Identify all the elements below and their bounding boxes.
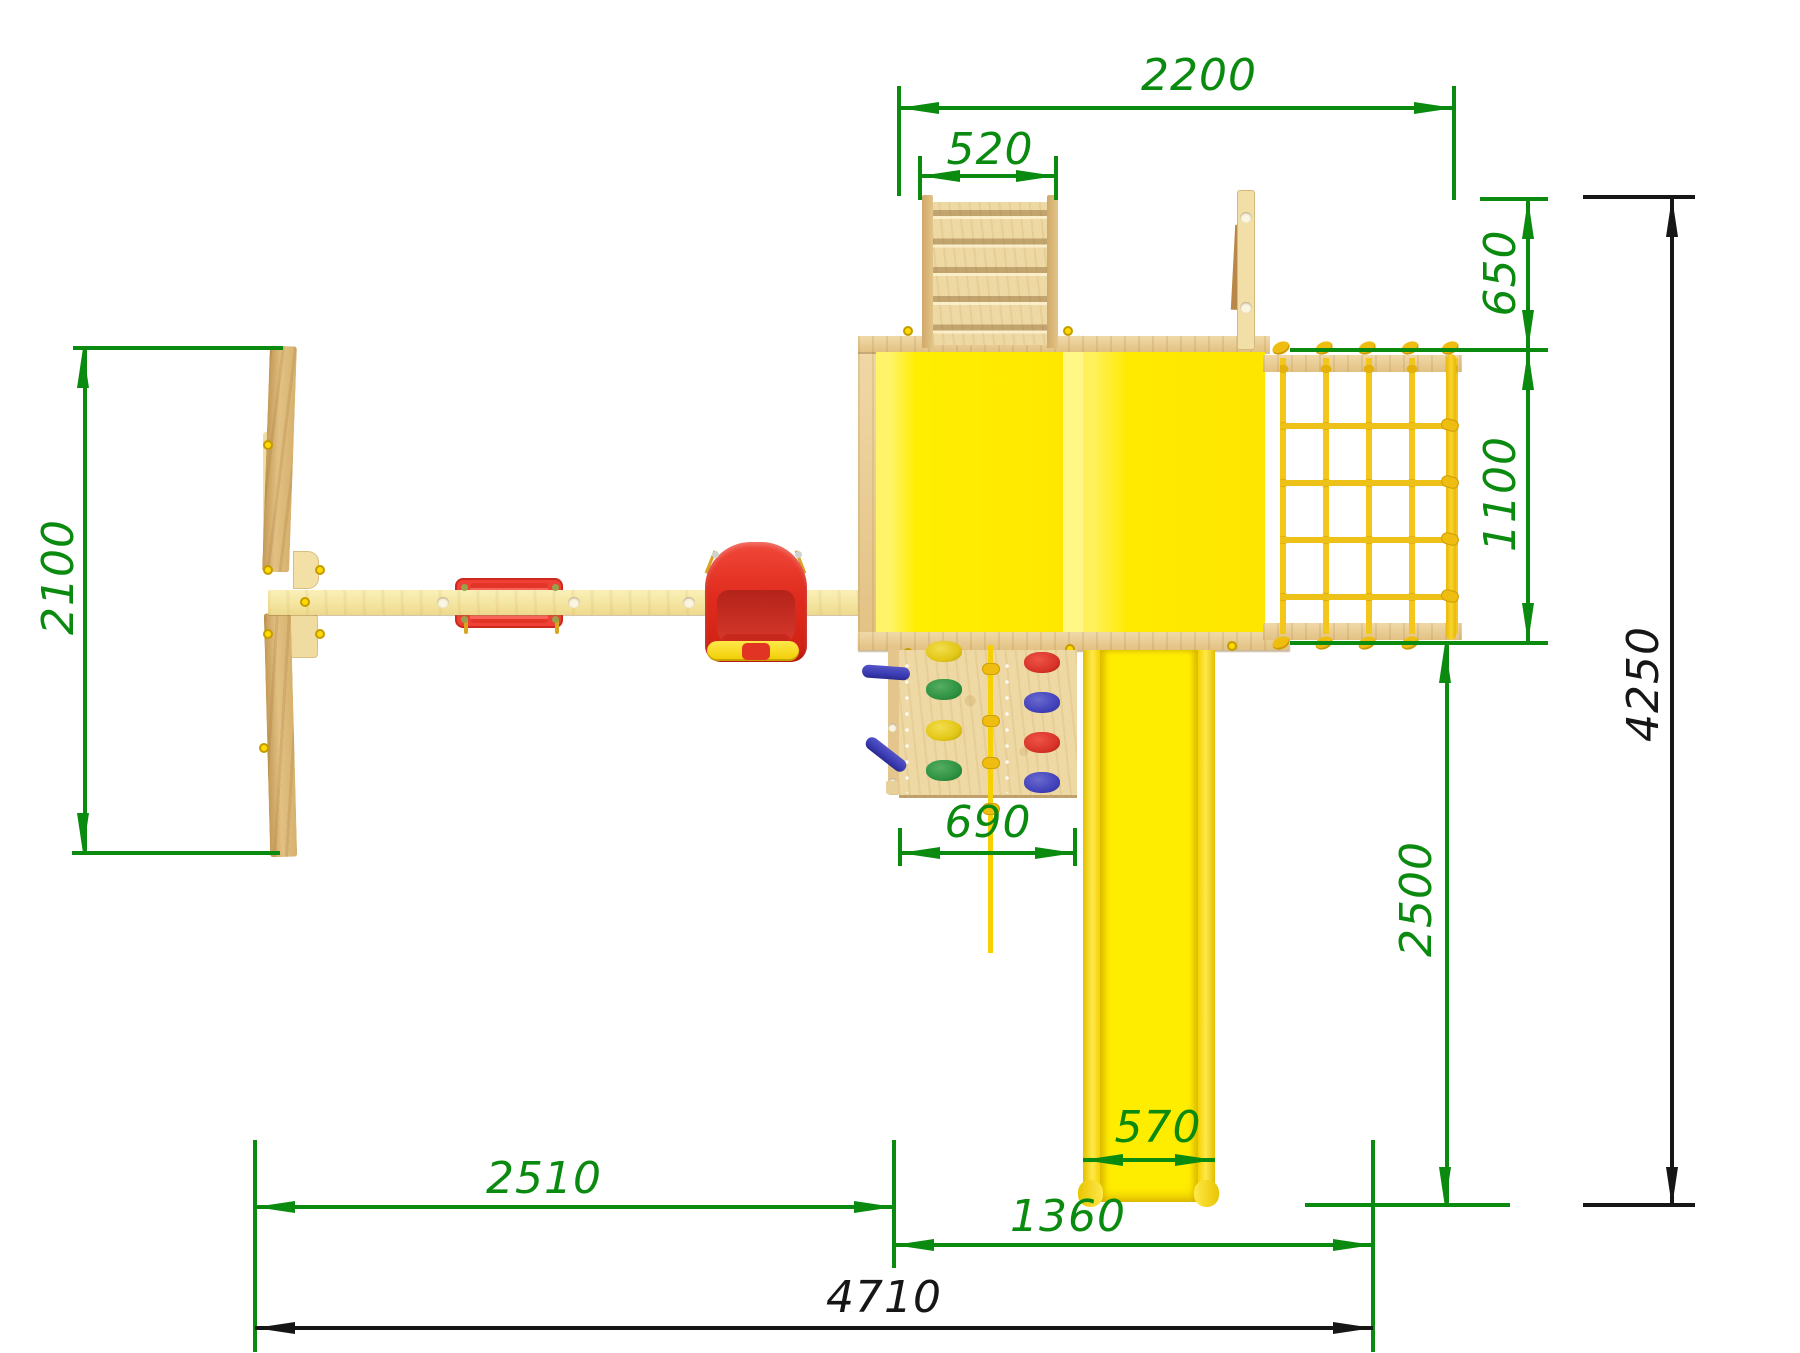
aframe-bolt — [263, 629, 273, 639]
ladder-rungs — [933, 202, 1047, 345]
flag-slat-hole — [1240, 302, 1252, 313]
dim-line-2500 — [1445, 643, 1449, 1207]
playground-plan-canvas: 2200 520 650 1100 4250 2500 2100 690 570 — [0, 0, 1800, 1353]
rim-bolt — [903, 326, 913, 336]
aframe-bolt — [263, 565, 273, 575]
beam-bolt — [300, 597, 310, 607]
ext-line — [73, 346, 283, 350]
climb-hold-green — [926, 679, 962, 700]
dim-label-690: 690 — [888, 799, 1088, 845]
flat-seat-bolt — [552, 616, 559, 623]
climb-hold-green — [926, 760, 962, 781]
climb-hold-yellow — [926, 641, 962, 662]
dim-label-650: 650 — [1477, 173, 1523, 373]
net-h-rope — [1280, 594, 1455, 600]
ladder-left-rail — [922, 195, 933, 348]
grab-handle-blue — [862, 664, 911, 680]
ladder-right-rail — [1047, 195, 1058, 348]
climbwall-rail-hole — [888, 723, 897, 732]
dim-label-520: 520 — [890, 126, 1090, 172]
rope-knot — [982, 757, 1000, 769]
net-h-rope — [1280, 423, 1455, 429]
arrow-icon — [1522, 603, 1534, 643]
baby-swing-bolt — [712, 551, 719, 558]
net-rope-grid — [1280, 358, 1458, 634]
rope-knot — [982, 663, 1000, 675]
climb-hold-yellow — [926, 720, 962, 741]
arrow-icon — [1333, 1322, 1373, 1334]
dim-line-2100 — [83, 348, 87, 853]
arrow-icon — [1439, 643, 1451, 683]
rim-bolt — [1227, 641, 1237, 651]
tower-roof-left-panel — [876, 352, 1063, 632]
dim-line-1100 — [1526, 350, 1530, 643]
arrow-icon — [77, 813, 89, 853]
ext-line — [253, 1140, 257, 1352]
beam-hole — [568, 597, 580, 608]
arrow-icon — [899, 102, 939, 114]
dim-label-4710: 4710 — [784, 1274, 984, 1320]
aframe-bolt — [259, 743, 269, 753]
tower-rim-top — [858, 336, 1270, 352]
ext-line — [1305, 1203, 1510, 1207]
climb-hold-red — [1024, 652, 1060, 673]
dim-label-2200: 2200 — [1099, 52, 1299, 98]
beam-hole — [683, 597, 695, 608]
ext-line — [72, 851, 280, 855]
arrow-icon — [1414, 102, 1454, 114]
climb-hold-blue — [1024, 692, 1060, 713]
flat-seat-bolt — [461, 616, 468, 623]
ext-line-black — [1583, 1203, 1695, 1207]
arrow-icon — [1175, 1154, 1215, 1166]
arrow-icon — [77, 348, 89, 388]
arrow-icon — [1035, 847, 1075, 859]
tower-rim-left — [858, 336, 876, 650]
arrow-icon — [900, 847, 940, 859]
aframe-upper-leg — [262, 346, 297, 573]
dim-label-2500: 2500 — [1393, 799, 1439, 999]
climb-hold-blue — [1024, 772, 1060, 793]
net-h-rope — [1280, 480, 1455, 486]
rope-knot — [982, 715, 1000, 727]
climb-hold-red — [1024, 732, 1060, 753]
net-h-rope — [1280, 537, 1455, 543]
arrow-icon — [255, 1322, 295, 1334]
dim-label-1360: 1360 — [968, 1193, 1168, 1239]
baby-swing-bolt — [795, 551, 802, 558]
tower-roof-ridge — [1063, 352, 1083, 632]
dim-label-4250: 4250 — [1620, 584, 1666, 784]
beam-hole — [437, 597, 449, 608]
climbwall-screw-dots — [1005, 658, 1009, 793]
dim-label-1100: 1100 — [1477, 394, 1523, 594]
dim-line-1360 — [894, 1243, 1373, 1247]
dim-label-2510: 2510 — [444, 1155, 644, 1201]
arrow-icon — [1522, 350, 1534, 390]
tower-roof-right-panel — [1083, 352, 1265, 632]
arrow-icon — [854, 1201, 894, 1213]
arrow-icon — [255, 1201, 295, 1213]
aframe-bolt — [315, 565, 325, 575]
ext-line — [1290, 641, 1548, 645]
arrow-icon — [1083, 1154, 1123, 1166]
baby-swing-center-tab — [742, 643, 770, 660]
dim-line-2200 — [899, 106, 1454, 110]
dim-label-570: 570 — [1058, 1104, 1258, 1150]
aframe-bolt — [315, 629, 325, 639]
arrow-icon — [1333, 1239, 1373, 1251]
arrow-icon — [1666, 197, 1678, 237]
flat-seat-bolt — [461, 584, 468, 591]
dim-label-2100: 2100 — [35, 477, 81, 677]
aframe-bolt — [263, 440, 273, 450]
slide-end-cap — [1194, 1180, 1219, 1207]
ext-line-black — [1583, 195, 1695, 199]
dim-line-4710 — [255, 1326, 1373, 1330]
flat-seat-bolt — [552, 584, 559, 591]
arrow-icon — [1666, 1167, 1678, 1207]
dim-line-4250 — [1670, 197, 1674, 1207]
climbwall-foot-block — [886, 781, 898, 794]
rim-bolt — [1063, 326, 1073, 336]
arrow-icon — [1439, 1167, 1451, 1207]
flag-slat-hole — [1240, 212, 1252, 223]
dim-line-2510 — [255, 1205, 894, 1209]
arrow-icon — [894, 1239, 934, 1251]
